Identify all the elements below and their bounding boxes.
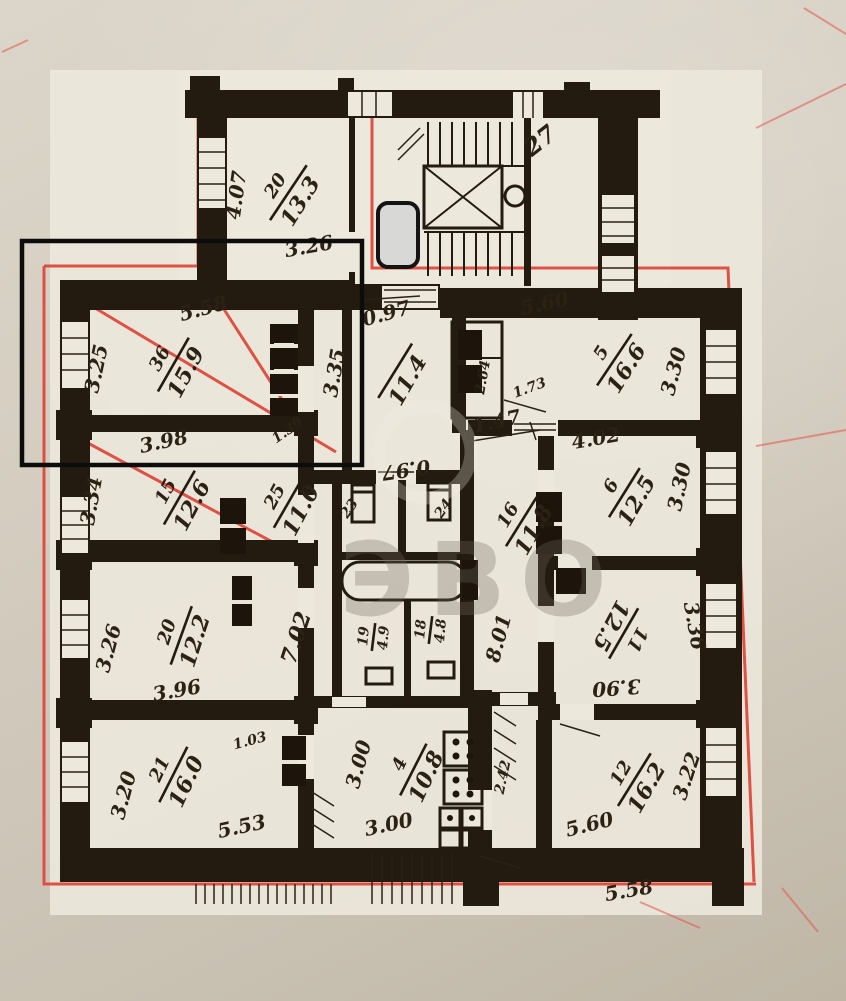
position-marker[interactable] [378, 203, 418, 267]
floor-plan-photo: ЭВО 20 13.3 4.07 3.26 27 5.58 36 15.9 3.… [0, 0, 846, 1001]
svg-text:4.9: 4.9 [375, 625, 393, 651]
svg-text:4.8: 4.8 [432, 618, 450, 644]
svg-text:18: 18 [412, 619, 430, 640]
watermark-text: ЭВО [339, 521, 620, 640]
svg-text:19: 19 [355, 626, 373, 647]
dim-3-90: 3.90 [591, 674, 641, 701]
